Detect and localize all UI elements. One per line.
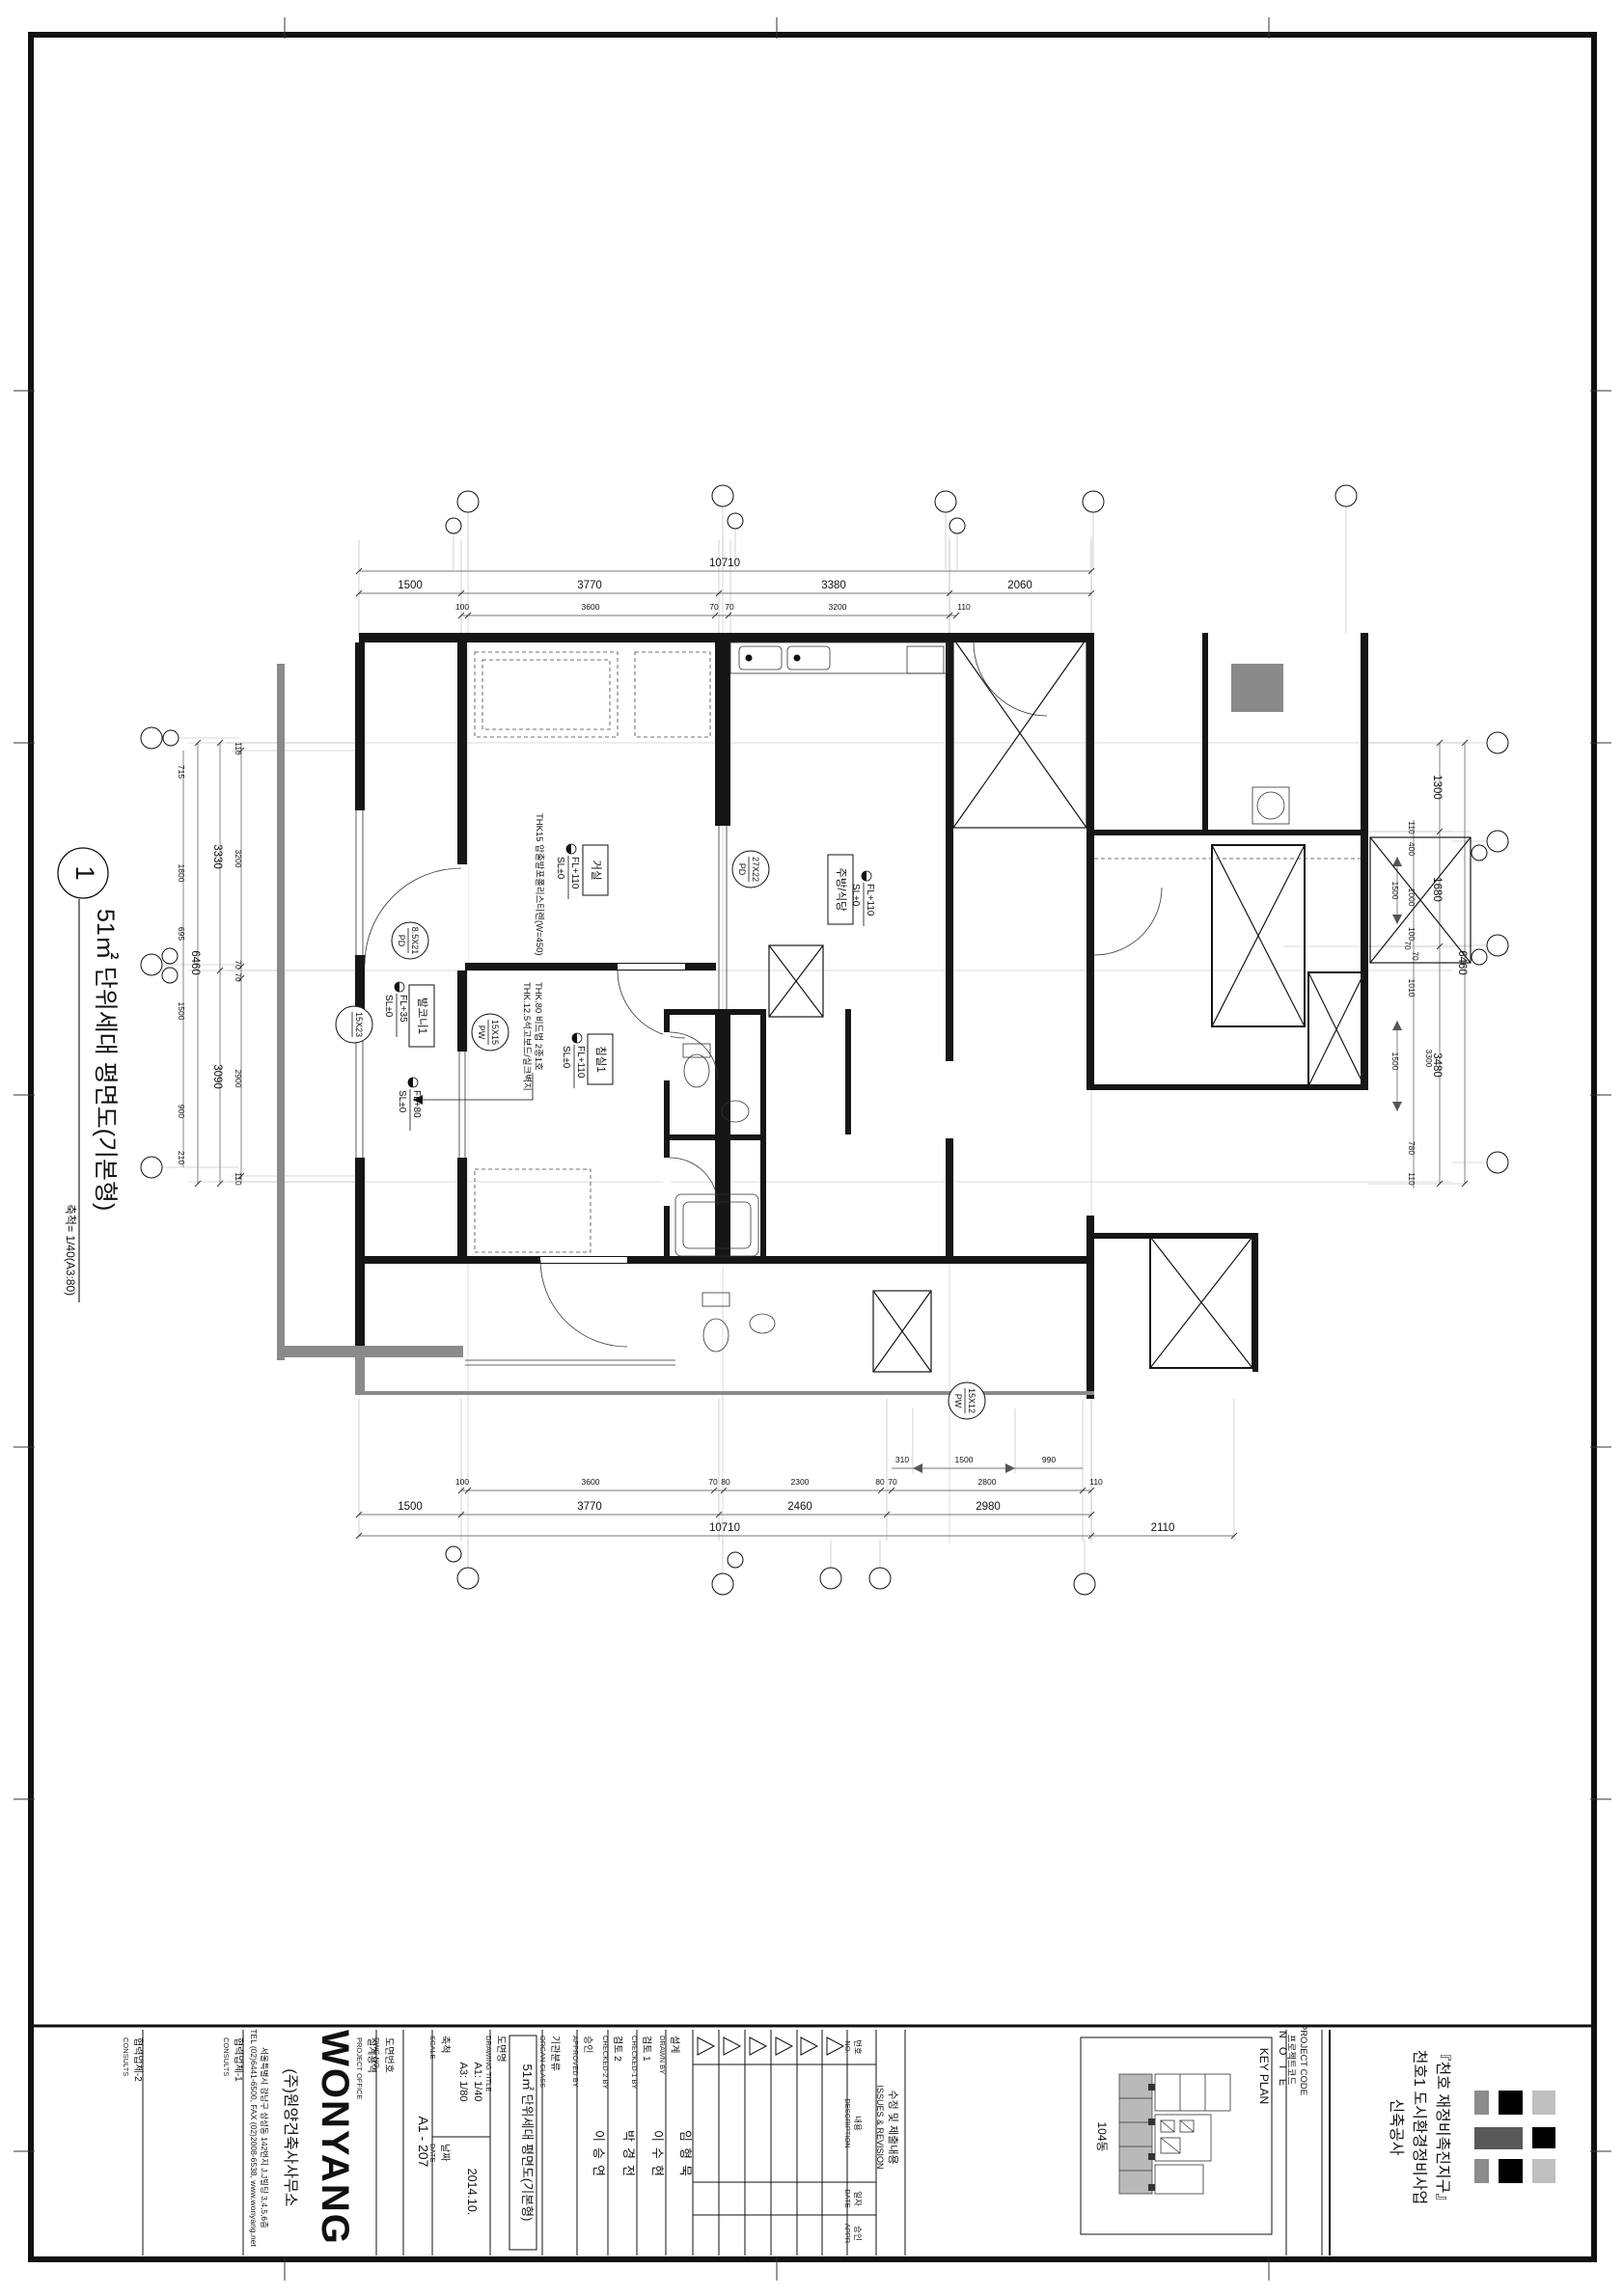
dim-label: 110 bbox=[957, 602, 971, 612]
checked1-value: 이수현 bbox=[650, 2130, 665, 2182]
dim-label: 2110 bbox=[1151, 1522, 1175, 1534]
level-marker-bedroom1: FL+110 SL±0 bbox=[561, 1033, 586, 1088]
plan-fixtures bbox=[475, 642, 1361, 1352]
dim-label: 2900 bbox=[234, 1070, 243, 1088]
page-title-scale: 축척= 1/40(A3:80) bbox=[64, 1204, 77, 1296]
svg-text:FL+110: FL+110 bbox=[865, 884, 875, 916]
dim-label: 3090 bbox=[211, 1064, 223, 1089]
room-label-living: 거실 bbox=[590, 860, 602, 880]
svg-text:PW: PW bbox=[477, 1025, 486, 1040]
project-name: 『천호 재정비촉진지구』천호1 도시환경정비사업신축공사 bbox=[1388, 2046, 1451, 2209]
svg-text:15X15: 15X15 bbox=[490, 1020, 500, 1045]
approved-value: 이승연 bbox=[591, 2130, 606, 2182]
drawing-title-block: 1 51㎡ 단위세대 평면도(기본형) 축척= 1/40(A3:80) bbox=[58, 848, 119, 1302]
svg-text:SL±0: SL±0 bbox=[850, 884, 861, 907]
dim-label: 70 bbox=[1411, 951, 1420, 961]
dim-label: 3770 bbox=[577, 580, 602, 591]
dwg-title-label: 도면명DRAWING TITLE bbox=[484, 2036, 507, 2091]
checked2-label: 검토 2CHECKED-2 BY bbox=[601, 2036, 623, 2089]
right-dimensions: 6460 1300 1680 3480 110 400 1500 1000 10… bbox=[1368, 740, 1471, 1189]
dim-label: 10710 bbox=[709, 1522, 740, 1534]
dim-label: 70 bbox=[725, 602, 734, 612]
dim-label: 210 bbox=[177, 1151, 186, 1164]
dim-label: 80 bbox=[721, 1477, 730, 1487]
svg-text:SL±0: SL±0 bbox=[561, 1046, 571, 1069]
top-dimensions: 10710 1500 3770 3380 2060 100 3600 70 70… bbox=[356, 540, 1094, 637]
wall-finish-note-2: THK.80 비드법 2종1호 bbox=[533, 982, 543, 1071]
dim-label: 110 bbox=[1407, 821, 1417, 834]
dim-label: 2800 bbox=[978, 1477, 997, 1487]
dim-label: 70 bbox=[708, 1477, 718, 1487]
wall-finish-note-1: THK.12.5석고보드/실크벽지 bbox=[521, 982, 532, 1091]
keyplan-unit: 104동 bbox=[1095, 2121, 1109, 2151]
rev-desc-label: 내용DESCRIPTION bbox=[843, 2098, 863, 2147]
level-marker-kitchen: FL+110 SL±0 bbox=[850, 871, 875, 926]
left-dimensions: 6460 3330 3090 110 3200 70 70 2900 110 7… bbox=[177, 740, 359, 1187]
keyplan-label: KEY PLAN bbox=[1257, 2048, 1271, 2104]
dim-label: 3200 bbox=[234, 850, 243, 868]
project-code-label: PROJECT CODE프로젝트코드 bbox=[1285, 2024, 1308, 2095]
drawing-sheet: 1 51㎡ 단위세대 평면도(기본형) 축척= 1/40(A3:80) bbox=[0, 0, 1623, 2296]
dim-label: 1500 bbox=[955, 1455, 974, 1464]
page-title: 51㎡ 단위세대 평면도(기본형) bbox=[92, 909, 119, 1211]
room-label-balcony1: 발코니1 bbox=[416, 998, 428, 1034]
insulation-note: THK15 압출발포폴리스티렌(W=450) bbox=[534, 813, 545, 956]
dim-label: 695 bbox=[177, 927, 186, 941]
scale-label: 축척SCALE bbox=[428, 2036, 451, 2060]
dwg-title-value: 51㎡ 단위세대 평면도(기본형) bbox=[520, 2064, 535, 2222]
consults1-label: 협력업체-1CONSULTS bbox=[222, 2037, 245, 2082]
dim-label: 400 bbox=[1407, 842, 1417, 856]
dim-label: 1010 bbox=[1407, 979, 1417, 998]
title-block: 협력업체-2CONSULTS 협력업체-1CONSULTS 설계용역PROJEC… bbox=[34, 2024, 1591, 2255]
dim-label: 2460 bbox=[787, 1501, 812, 1513]
rev-title: 수정 및 제출내용ISSUES & REVISION bbox=[875, 2085, 899, 2169]
consults2-label: 협력업체-2CONSULTS bbox=[122, 2037, 145, 2082]
dwg-no-label: 도면번호DWG NO. bbox=[372, 2037, 395, 2073]
firm-logo: WONYANG bbox=[314, 2030, 356, 2246]
svg-text:FL+110: FL+110 bbox=[569, 857, 580, 889]
dim-label: 110 bbox=[234, 1172, 243, 1186]
dim-label: 900 bbox=[177, 1105, 186, 1118]
dim-label: 1500 bbox=[398, 580, 423, 591]
svg-text:15X23: 15X23 bbox=[354, 1012, 364, 1037]
level-marker-balcony1: FL+35 SL±0 bbox=[383, 982, 408, 1037]
svg-text:SL±0: SL±0 bbox=[383, 995, 394, 1018]
sheet-border bbox=[14, 17, 1611, 2281]
room-label-kitchen: 주방/식당 bbox=[835, 867, 847, 912]
dim-label: 780 bbox=[1407, 1141, 1417, 1155]
svg-text:SL±0: SL±0 bbox=[397, 1090, 407, 1113]
plan-notes: THK15 압출발포폴리스티렌(W=450) THK.12.5석고보드/실크벽지… bbox=[413, 813, 545, 1105]
firm-address: 서울특별시 강남구 삼성동 142번지 J.J빌딩 3,4,5,6층 bbox=[260, 2047, 269, 2228]
dim-label: 3770 bbox=[577, 1501, 602, 1513]
dim-label: 1500 bbox=[1390, 882, 1400, 900]
svg-text:PD: PD bbox=[397, 935, 406, 947]
dim-label: 1680 bbox=[1431, 877, 1443, 902]
dim-label: 1000 bbox=[1407, 888, 1417, 907]
title-number: 1 bbox=[70, 865, 99, 880]
key-plan: 104동 KEY PLAN bbox=[1081, 2037, 1272, 2234]
dim-label: 1800 bbox=[177, 864, 186, 883]
dim-label: 1500 bbox=[398, 1501, 423, 1513]
dim-label: 70 bbox=[1403, 941, 1413, 950]
project-name-cell: 『천호 재정비촉진지구』천호1 도시환경정비사업신축공사 bbox=[1388, 2046, 1555, 2209]
rev-date-label: 일자DATE bbox=[843, 2189, 863, 2207]
dim-label: 1300 bbox=[1431, 775, 1443, 800]
dim-label: 110 bbox=[234, 742, 243, 755]
dim-label: 70 bbox=[709, 602, 719, 612]
drawn-label: 설계DRAWN BY bbox=[658, 2036, 680, 2074]
svg-text:27X22: 27X22 bbox=[751, 857, 760, 882]
svg-text:15X12: 15X12 bbox=[967, 1388, 977, 1413]
checked2-value: 박경전 bbox=[621, 2130, 636, 2182]
dim-label: 1500 bbox=[177, 1002, 186, 1021]
bottom-dimensions: 310 1500 990 100 3600 70 80 2300 80 70 2… bbox=[356, 1399, 1237, 1541]
room-label-bedroom1: 침실1 bbox=[594, 1046, 607, 1073]
svg-text:FL+35: FL+35 bbox=[398, 995, 408, 1023]
plan-tags: 27X22 PD 8.5X21 PD 15X23 15X15 PW 15X12 … bbox=[336, 851, 985, 1419]
dim-label: 10710 bbox=[709, 558, 740, 569]
dim-label: 110 bbox=[1407, 1172, 1417, 1186]
level-marker-extra: FL+80 SL±0 bbox=[397, 1078, 422, 1131]
drawn-value: 임형묵 bbox=[678, 2130, 693, 2182]
dim-label: 1500 bbox=[1390, 1052, 1400, 1071]
dim-label: 100 bbox=[455, 1477, 469, 1487]
svg-text:FL+80: FL+80 bbox=[411, 1090, 422, 1118]
approved-label: 승인APPROVED BY bbox=[571, 2036, 593, 2088]
dim-label: 80 bbox=[875, 1477, 885, 1487]
client-logo bbox=[1474, 2091, 1555, 2183]
dim-label: 715 bbox=[177, 765, 186, 779]
svg-text:PW: PW bbox=[953, 1394, 963, 1408]
dim-label: 3330 bbox=[211, 844, 223, 869]
dim-label: 3600 bbox=[582, 602, 600, 612]
dim-label: 70 bbox=[234, 972, 243, 982]
rev-appr-label: 승인APPR bbox=[843, 2224, 863, 2244]
dim-label: 990 bbox=[1042, 1455, 1056, 1464]
dim-label: 110 bbox=[1089, 1477, 1103, 1487]
floor-plan-sheet-svg: 1 51㎡ 단위세대 평면도(기본형) 축척= 1/40(A3:80) bbox=[0, 0, 1623, 2296]
rev-no-label: 번호NO. bbox=[843, 2039, 863, 2055]
dim-label: 70 bbox=[888, 1477, 897, 1487]
scale-value: A1: 1/40A3: 1/80 bbox=[457, 2063, 483, 2102]
date-label: 날짜DATE bbox=[428, 2144, 451, 2162]
dim-label: 70 bbox=[234, 960, 243, 970]
dim-label: 2300 bbox=[791, 1477, 810, 1487]
svg-text:SL±0: SL±0 bbox=[555, 857, 565, 880]
organ-class-label: 기관분류ORGAN CLASS bbox=[538, 2036, 561, 2088]
level-marker-living: FL+110 SL±0 bbox=[555, 844, 580, 899]
dim-label: 3600 bbox=[582, 1477, 600, 1487]
firm-name: (주)원양건축사사무소 bbox=[282, 2068, 299, 2206]
date-value: 2014.10. bbox=[465, 2169, 479, 2216]
svg-text:PD: PD bbox=[737, 863, 747, 876]
dim-label: 2980 bbox=[976, 1501, 1001, 1513]
dim-label: 100 bbox=[455, 602, 469, 612]
dim-label: 3300 bbox=[1424, 1050, 1434, 1068]
dim-label: 310 bbox=[895, 1455, 909, 1464]
dim-label: 100 bbox=[1407, 927, 1417, 941]
svg-text:FL+110: FL+110 bbox=[575, 1046, 586, 1079]
dim-label: 3200 bbox=[829, 602, 847, 612]
dim-label: 3380 bbox=[821, 580, 846, 591]
svg-text:8.5X21: 8.5X21 bbox=[410, 927, 420, 955]
dim-label: 2060 bbox=[1007, 580, 1032, 591]
firm-contact: TEL (02)6441-6500, FAX (02)2008-6538, ww… bbox=[249, 2029, 259, 2247]
dim-label: 6460 bbox=[189, 950, 201, 975]
checked1-label: 검토 1CHECKED-1 BY bbox=[630, 2036, 652, 2089]
